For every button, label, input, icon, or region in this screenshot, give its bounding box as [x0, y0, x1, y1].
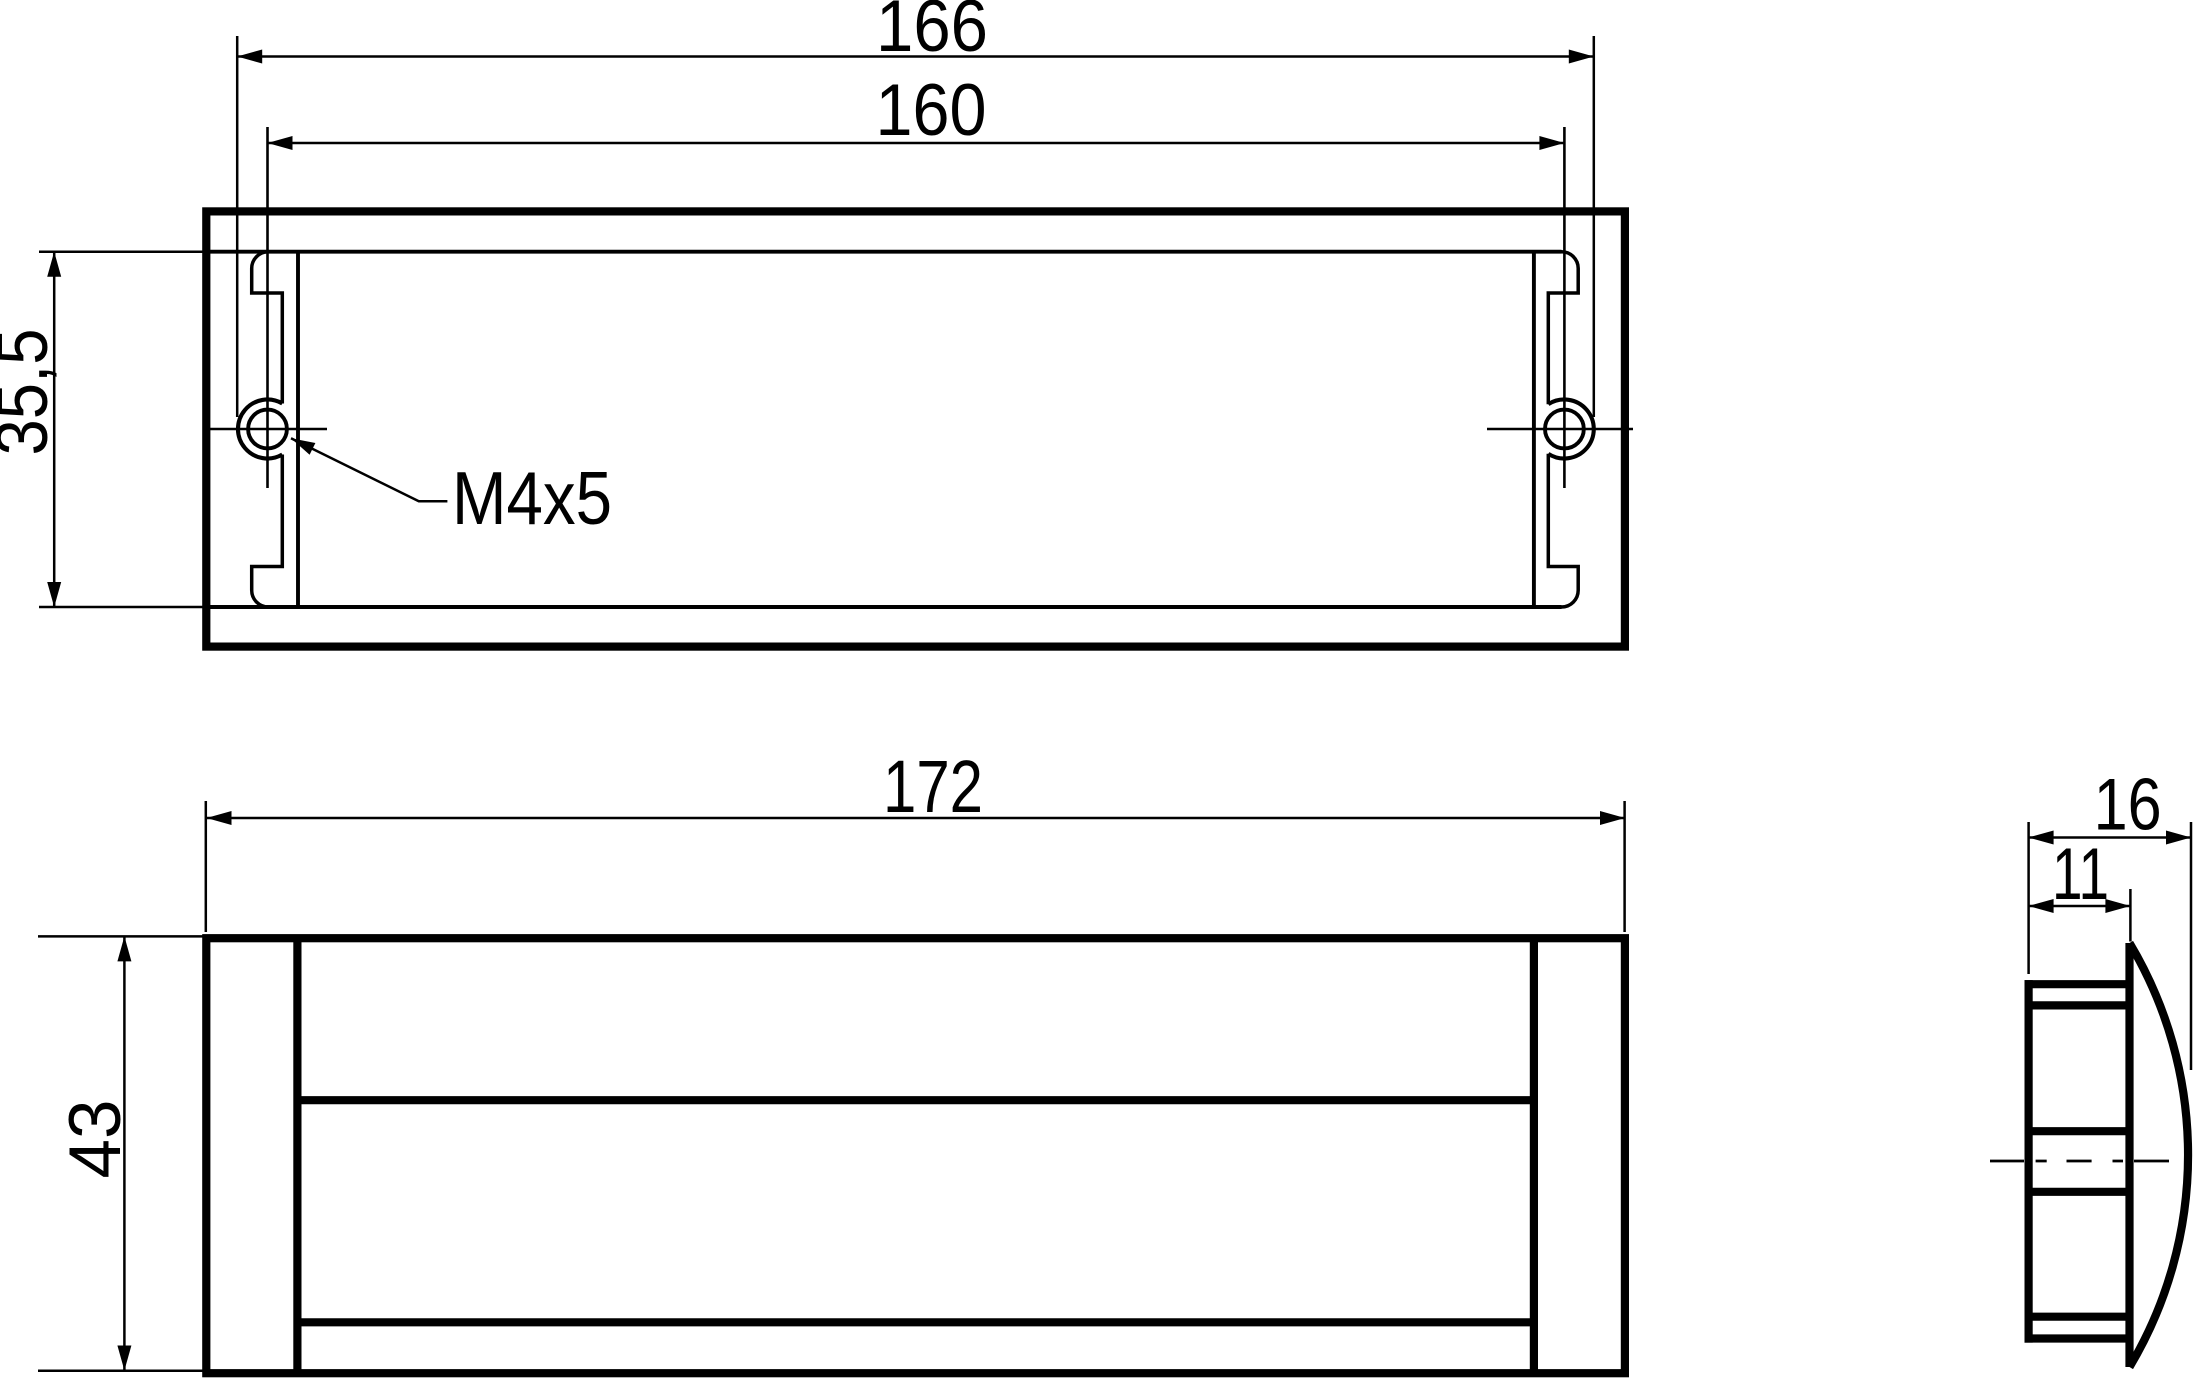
svg-text:11: 11 — [2052, 834, 2109, 915]
svg-text:43: 43 — [55, 1100, 136, 1179]
svg-text:160: 160 — [876, 70, 987, 151]
svg-text:166: 166 — [876, 0, 988, 67]
svg-text:35,5: 35,5 — [0, 329, 63, 456]
svg-text:M4x5: M4x5 — [452, 456, 612, 540]
svg-text:172: 172 — [883, 745, 983, 828]
